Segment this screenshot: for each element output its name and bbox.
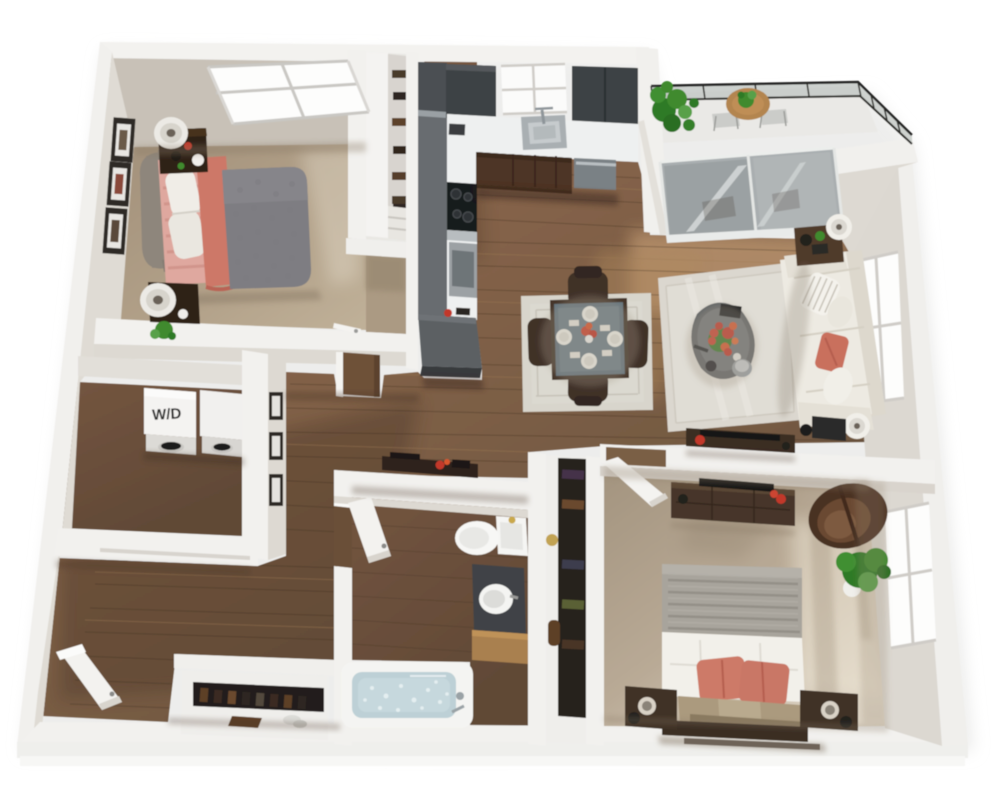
svg-text:W/D: W/D [152, 405, 182, 424]
